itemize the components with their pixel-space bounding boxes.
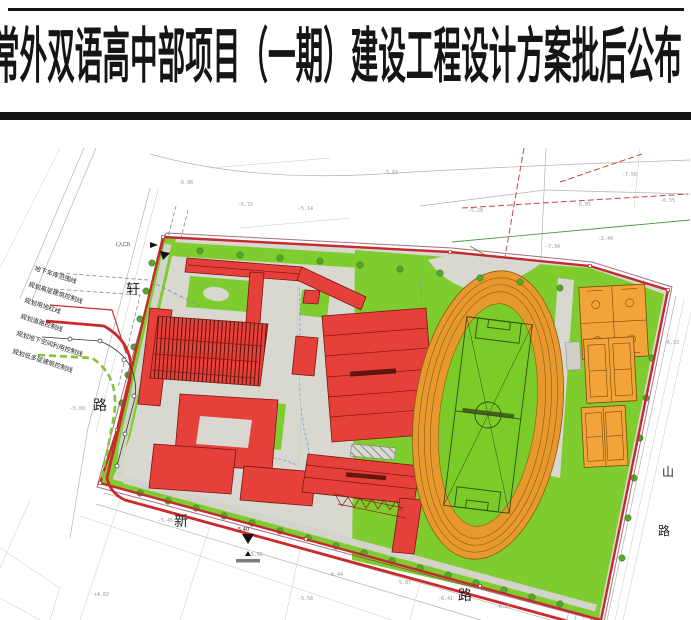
survey-mark: +4.02 bbox=[94, 592, 109, 598]
survey-mark: -5.93 bbox=[383, 170, 398, 176]
main-gate-label-smudge bbox=[236, 559, 260, 563]
main-gate-triangle-icon bbox=[242, 534, 254, 544]
main-gate-elevation: 5.40 bbox=[238, 527, 249, 533]
survey-mark: -2.44 bbox=[598, 236, 613, 242]
road-label-east-char-2: 路 bbox=[658, 523, 670, 538]
survey-mark: -5.66 bbox=[248, 552, 263, 558]
survey-mark: -6.33 bbox=[664, 340, 679, 346]
survey-mark: -5.87 bbox=[396, 580, 411, 586]
road-label-west-char-2: 路 bbox=[93, 398, 107, 414]
announcement-top-rule bbox=[8, 8, 684, 11]
tennis-courts-lower bbox=[581, 405, 628, 467]
survey-mark: -6.55 bbox=[660, 198, 675, 204]
survey-mark: -5.20 bbox=[468, 208, 483, 214]
road-label-south-char-2: 路 bbox=[458, 588, 472, 604]
survey-mark: -6.05 bbox=[576, 202, 591, 208]
road-label-south-char-1: 新 bbox=[174, 514, 188, 530]
road-label-east-char-1: 山 bbox=[662, 465, 674, 479]
survey-mark: -5.08 bbox=[70, 406, 85, 412]
survey-mark: -6.72 bbox=[238, 202, 253, 208]
north-gate-arrow-icon bbox=[150, 242, 158, 248]
survey-mark: -7.56 bbox=[622, 172, 637, 178]
survey-mark: -6.41 bbox=[438, 596, 453, 602]
survey-mark: -6.98 bbox=[178, 180, 193, 186]
announcement-divider bbox=[0, 112, 691, 120]
survey-mark: -6.25 bbox=[496, 604, 511, 610]
north-gate-label: (入口) bbox=[116, 242, 130, 248]
site-plan-map: 地下车库范围线 规划高层建筑控制线 规划用地红线 规划道路控制线 规划地下空间利… bbox=[0, 148, 691, 620]
parking-hatch-block bbox=[150, 316, 268, 386]
road-label-west-char-1: 轩 bbox=[126, 282, 140, 298]
survey-mark: -5.58 bbox=[298, 596, 313, 602]
legend-label-garage-extent: 地下车库范围线 bbox=[33, 263, 78, 285]
survey-mark: -6.44 bbox=[328, 572, 343, 578]
survey-mark: -5.14 bbox=[298, 206, 313, 212]
announcement-title: 常外双语高中部项目（一期）建设工程设计方案批后公布 bbox=[0, 24, 682, 90]
survey-mark: -7.34 bbox=[545, 244, 560, 250]
survey-mark: -5.45 bbox=[158, 518, 173, 524]
